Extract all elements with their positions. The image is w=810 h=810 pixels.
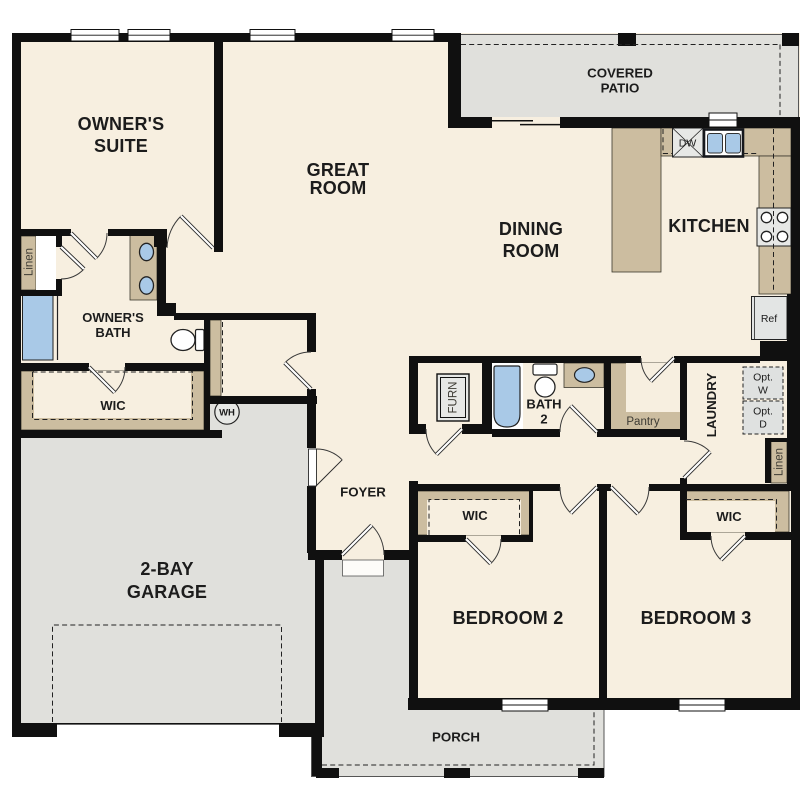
svg-text:COVERED: COVERED bbox=[587, 66, 653, 81]
svg-text:WIC: WIC bbox=[716, 509, 742, 524]
svg-text:BATH: BATH bbox=[526, 397, 561, 412]
svg-text:ROOM: ROOM bbox=[503, 241, 560, 261]
svg-text:BEDROOM 2: BEDROOM 2 bbox=[453, 608, 564, 628]
svg-text:Linen: Linen bbox=[24, 248, 36, 276]
svg-text:Opt.: Opt. bbox=[753, 372, 773, 384]
svg-text:W: W bbox=[758, 385, 768, 397]
svg-text:OWNER'S: OWNER'S bbox=[82, 310, 144, 325]
svg-text:DW: DW bbox=[679, 138, 697, 150]
svg-text:SUITE: SUITE bbox=[94, 136, 148, 156]
svg-text:KITCHEN: KITCHEN bbox=[668, 216, 749, 236]
svg-text:WIC: WIC bbox=[462, 508, 488, 523]
svg-text:LAUNDRY: LAUNDRY bbox=[704, 373, 719, 438]
svg-text:GARAGE: GARAGE bbox=[127, 582, 207, 602]
svg-text:GREAT: GREAT bbox=[307, 160, 370, 180]
svg-text:PORCH: PORCH bbox=[432, 730, 480, 745]
svg-text:WH: WH bbox=[219, 408, 235, 419]
svg-text:Linen: Linen bbox=[774, 448, 786, 476]
svg-text:ROOM: ROOM bbox=[310, 178, 367, 198]
svg-text:2: 2 bbox=[540, 412, 547, 427]
svg-text:WIC: WIC bbox=[100, 398, 126, 413]
svg-text:OWNER'S: OWNER'S bbox=[78, 114, 165, 134]
svg-text:FURN: FURN bbox=[448, 382, 460, 414]
svg-text:2-BAY: 2-BAY bbox=[140, 559, 193, 579]
svg-text:BATH: BATH bbox=[95, 325, 130, 340]
svg-text:Pantry: Pantry bbox=[626, 416, 659, 428]
svg-text:D: D bbox=[759, 419, 767, 431]
svg-text:DINING: DINING bbox=[499, 219, 563, 239]
svg-text:PATIO: PATIO bbox=[601, 81, 640, 96]
svg-text:BEDROOM 3: BEDROOM 3 bbox=[641, 608, 752, 628]
svg-text:Opt.: Opt. bbox=[753, 406, 773, 418]
svg-text:Ref: Ref bbox=[761, 313, 777, 325]
svg-text:FOYER: FOYER bbox=[340, 485, 386, 500]
